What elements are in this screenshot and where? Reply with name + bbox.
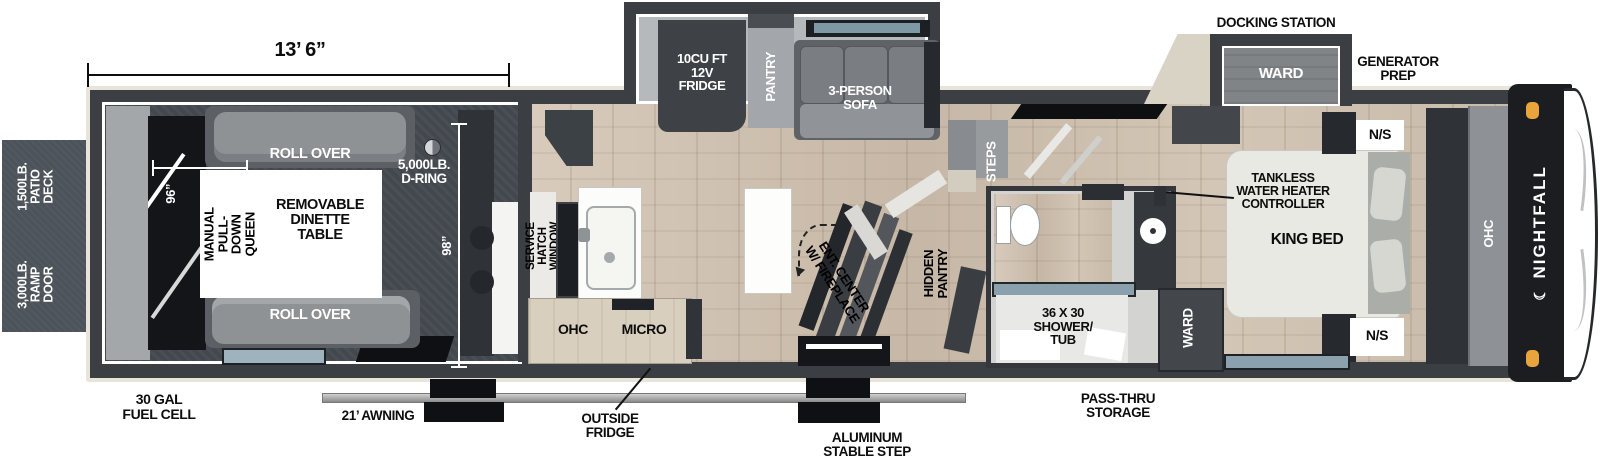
garage-window: [222, 348, 326, 365]
tankless-label: TANKLESS WATER HEATER CONTROLLER: [1232, 172, 1334, 211]
bath-door: [1082, 184, 1124, 200]
bed-pillow: [1369, 238, 1406, 293]
sofa-label: 3-PERSON SOFA: [812, 84, 908, 111]
ramp-door-label: 3,000LB. RAMP DOOR: [8, 238, 64, 332]
nightstand-top-label: N/S: [1356, 127, 1404, 142]
entry-door: [798, 336, 890, 366]
rollover-top-label: ROLL OVER: [240, 147, 380, 162]
entry-door-threshold: [806, 344, 882, 349]
dim-98-label: 98”: [434, 222, 460, 270]
generator-prep-label: GENERATOR PREP: [1350, 55, 1446, 83]
rollover-bottom-label: ROLL OVER: [240, 308, 380, 323]
slide-window-glass: [814, 23, 920, 33]
pulldown-queen-label: MANUAL PULL-DOWN QUEEN: [202, 178, 258, 290]
dim-96-tick: [152, 160, 154, 176]
pass-thru-label: PASS-THRU STORAGE: [1058, 392, 1178, 420]
counter-end-cabinet: [686, 299, 702, 359]
kitchen-island: [744, 188, 792, 294]
dim-98-tick: [451, 123, 467, 125]
kitchen-sink: [586, 206, 636, 290]
garage-entry-step: [430, 379, 496, 398]
length-dimension-label: 13’ 6”: [240, 40, 360, 61]
outside-fridge-label: OUTSIDE FRIDGE: [560, 412, 660, 440]
front-cap-nose: [1564, 88, 1598, 380]
garage-entry-step: [424, 402, 504, 422]
brand-logo: ☾ NIGHTFALL: [1508, 90, 1572, 376]
crescent-moon-icon: ☾: [1532, 285, 1549, 300]
tankless-device: [1154, 186, 1166, 206]
entry-stable-step: [798, 402, 880, 423]
d-ring-label: 5,000LB. D-RING: [384, 158, 464, 186]
nightstand-cab-top: [1322, 112, 1356, 154]
patio-deck-label: 1,500LB. PATIO DECK: [8, 142, 64, 232]
bedroom-wardrobe-band: [1426, 108, 1468, 364]
ramp-highlight: [151, 243, 206, 319]
stove: [612, 299, 654, 310]
fuel-cell-label: 30 GAL FUEL CELL: [100, 392, 218, 421]
sofa-arm: [924, 42, 940, 128]
dim-96-label: 96”: [156, 172, 186, 216]
dim-98-tick: [451, 366, 467, 368]
bedroom-window: [1224, 354, 1350, 370]
entry-stable-step: [806, 378, 870, 398]
shower-label: 36 X 30 SHOWER/ TUB: [1008, 306, 1118, 347]
garage-speaker: [470, 270, 494, 294]
toilet-bowl: [1010, 204, 1040, 246]
dinette-label: REMOVABLE DINETTE TABLE: [262, 198, 378, 244]
sink-faucet: [578, 228, 590, 242]
docking-station-box: [1144, 34, 1214, 104]
bath-ward-label: WARD: [1168, 292, 1210, 364]
dim-96-line: [153, 167, 247, 169]
stable-step-label: ALUMINUM STABLE STEP: [806, 431, 928, 459]
bath-sink-drain: [1150, 228, 1156, 234]
docking-station-label: DOCKING STATION: [1196, 16, 1356, 30]
garage-left-wall: [106, 106, 150, 360]
garage-door-to-kitchen: [492, 202, 520, 354]
micro-label: MICRO: [606, 322, 682, 337]
fridge-label: 10CU FT 12V FRIDGE: [660, 52, 744, 93]
bathroom-floor: [994, 194, 1112, 288]
bedroom-cabinet-top: [1172, 106, 1240, 144]
pantry-label: PANTRY: [748, 34, 794, 120]
garage-speaker: [470, 226, 494, 250]
length-dimension-line: [88, 74, 510, 76]
awning-label: 21’ AWNING: [330, 409, 426, 423]
ward-slide-label: WARD: [1222, 66, 1340, 82]
d-ring-icon: [424, 139, 441, 156]
ohc-label: OHC: [540, 322, 606, 337]
brand-name: NIGHTFALL: [1530, 165, 1549, 278]
length-dim-tick: [87, 63, 89, 87]
bedroom-ledge: [1011, 104, 1168, 119]
dim-96-tick: [246, 160, 248, 176]
sink-drain: [604, 252, 615, 263]
king-bed-label: KING BED: [1252, 232, 1362, 248]
ramp-opening: [148, 116, 206, 350]
nightstand-bottom-label: N/S: [1350, 328, 1404, 343]
steps-landing: [948, 170, 976, 192]
length-dim-tick: [508, 63, 510, 87]
bed-pillow: [1369, 166, 1406, 221]
bedroom-ohc-label: OHC: [1470, 208, 1508, 260]
floorplan-diagram: ROLL OVER ROLL OVER MANUAL PULL-DOWN QUE…: [0, 0, 1600, 464]
toilet-tank: [996, 206, 1011, 244]
